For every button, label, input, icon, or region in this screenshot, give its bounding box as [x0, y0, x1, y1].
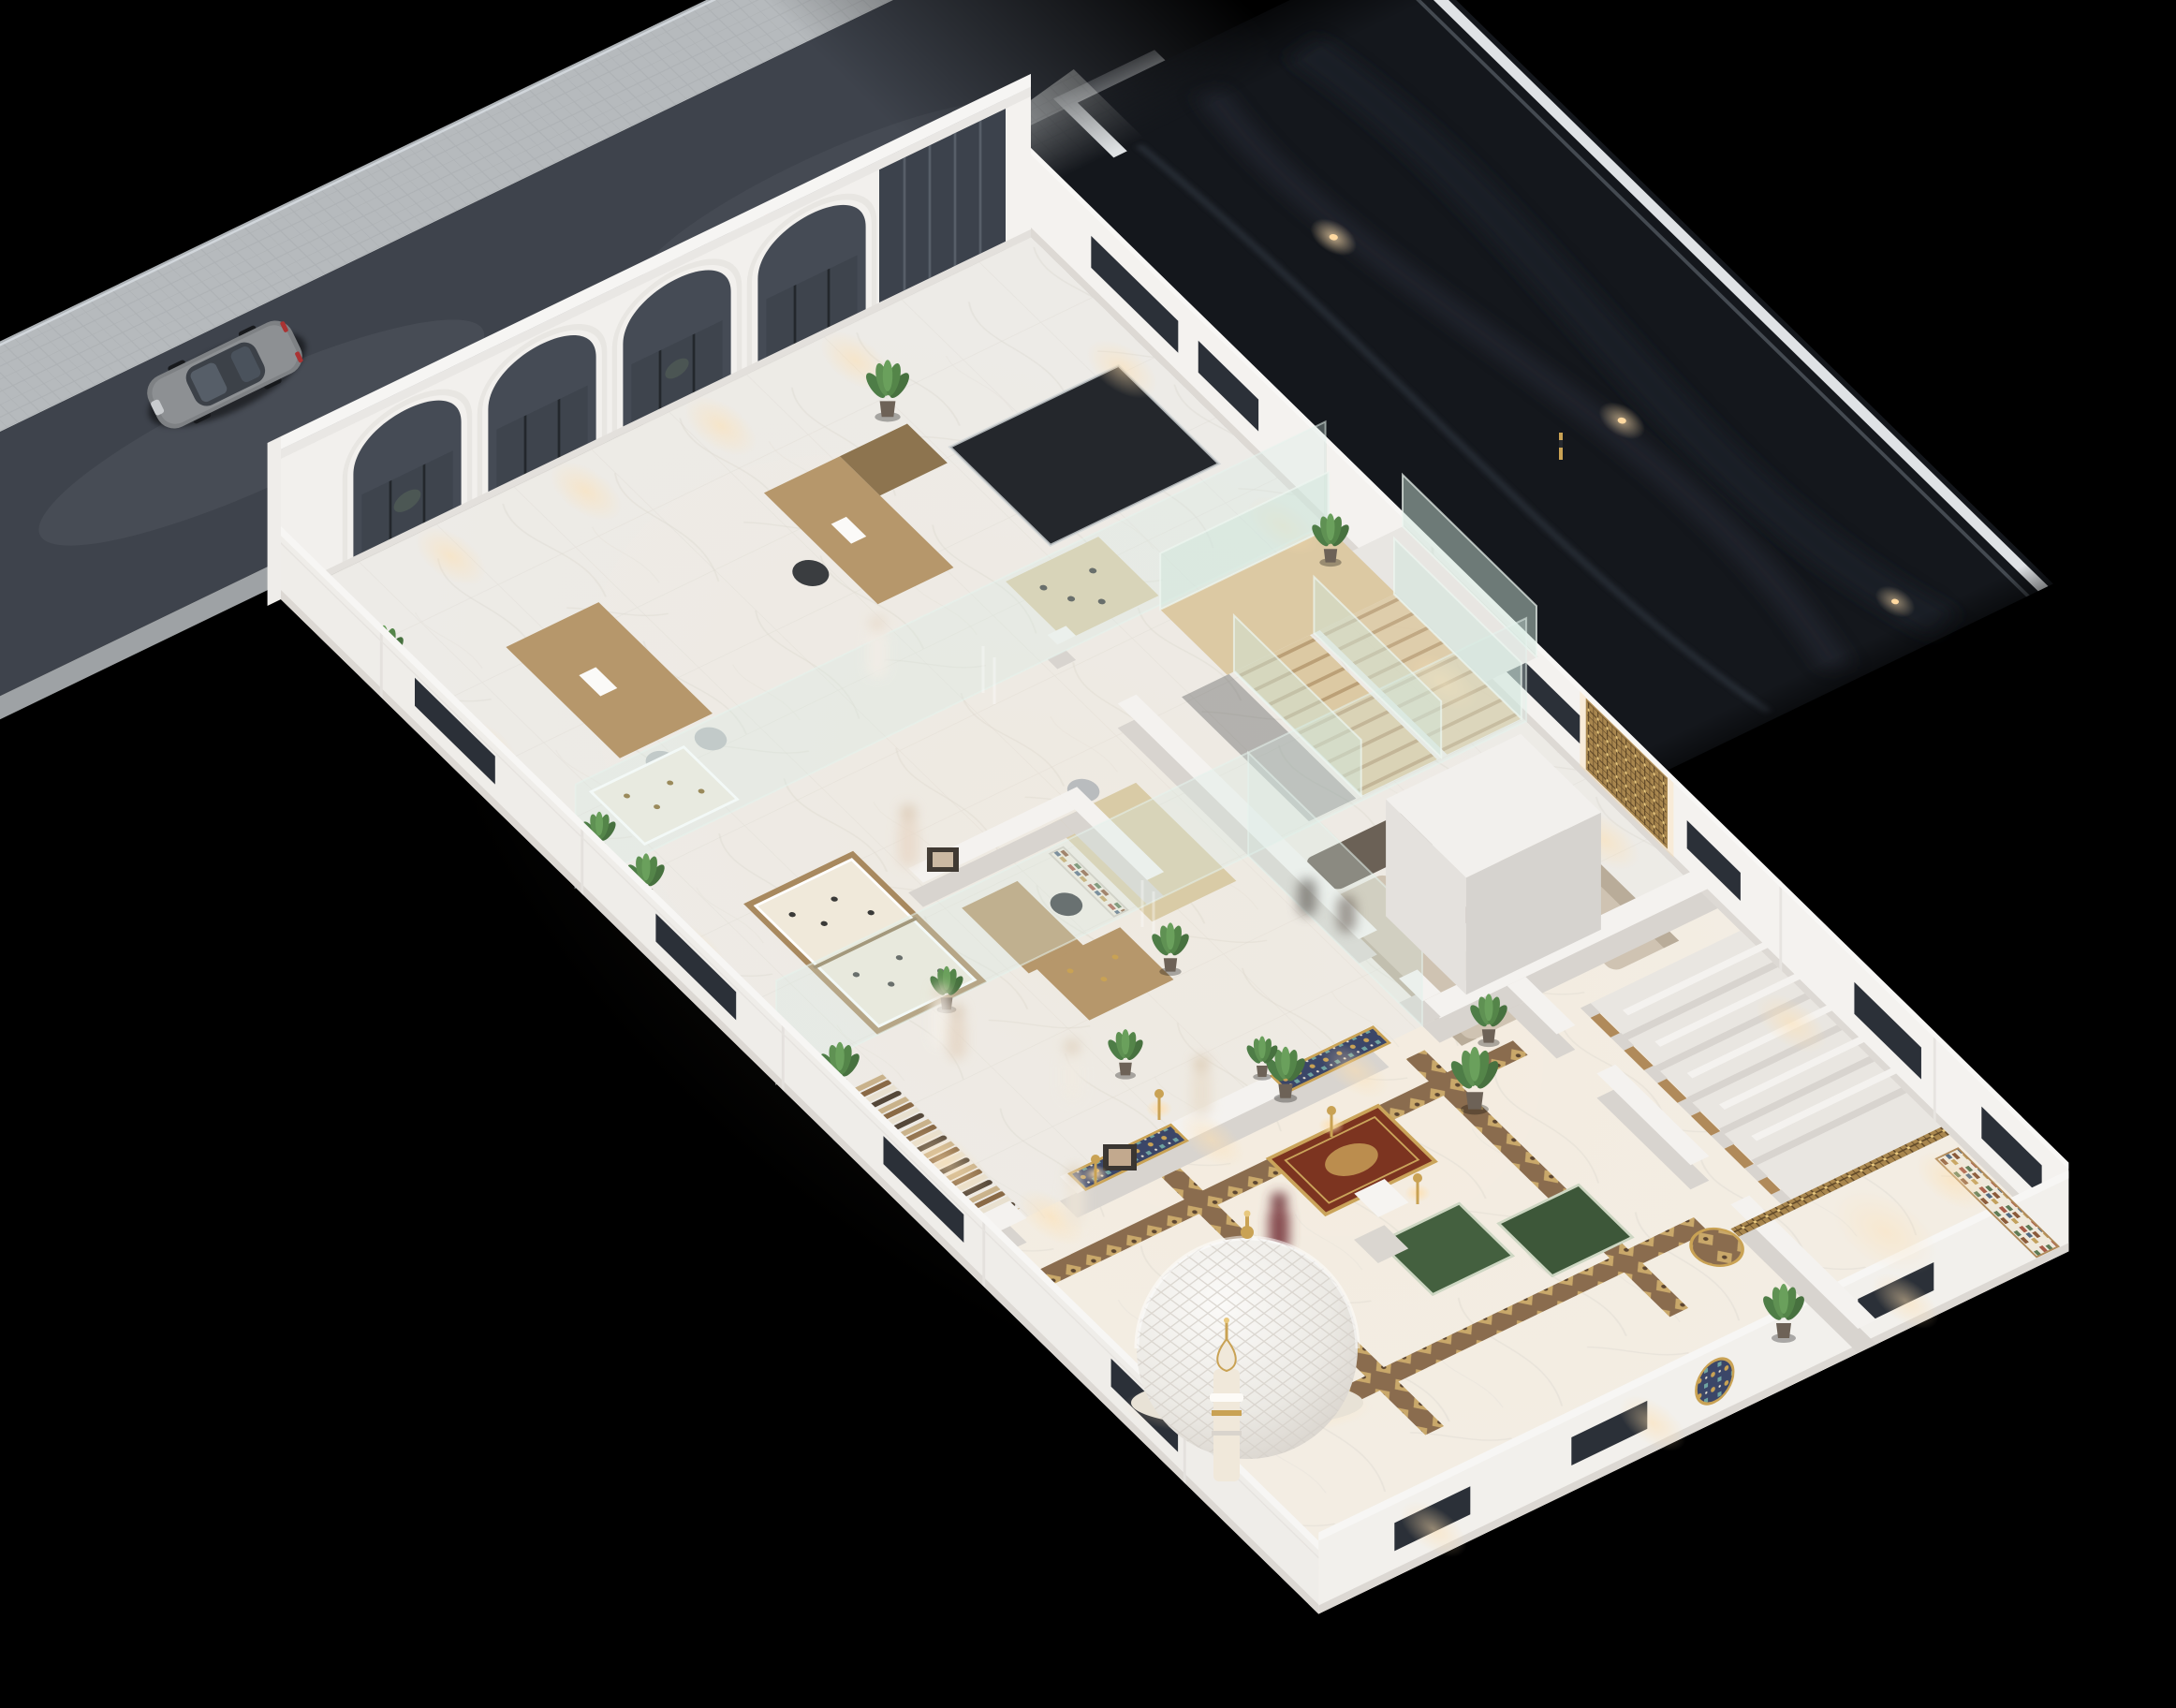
minaret-shaft — [1213, 1369, 1240, 1481]
minaret-balcony — [1210, 1393, 1243, 1402]
person-blurred — [898, 804, 919, 867]
render-canvas — [0, 0, 2176, 1708]
scene-svg — [0, 0, 2176, 1708]
minaret-spike-ball — [1224, 1318, 1229, 1323]
facade-corner-return — [268, 436, 281, 606]
minaret-ring — [1212, 1431, 1242, 1436]
person-blurred — [1191, 1055, 1212, 1116]
person-blurred — [867, 615, 888, 678]
facade-end-pier — [1006, 87, 1031, 249]
minaret-gold-ring — [1212, 1410, 1242, 1416]
person-blurred — [948, 1004, 966, 1060]
person-blurred — [1062, 1038, 1082, 1101]
person-blurred — [1065, 1166, 1085, 1227]
